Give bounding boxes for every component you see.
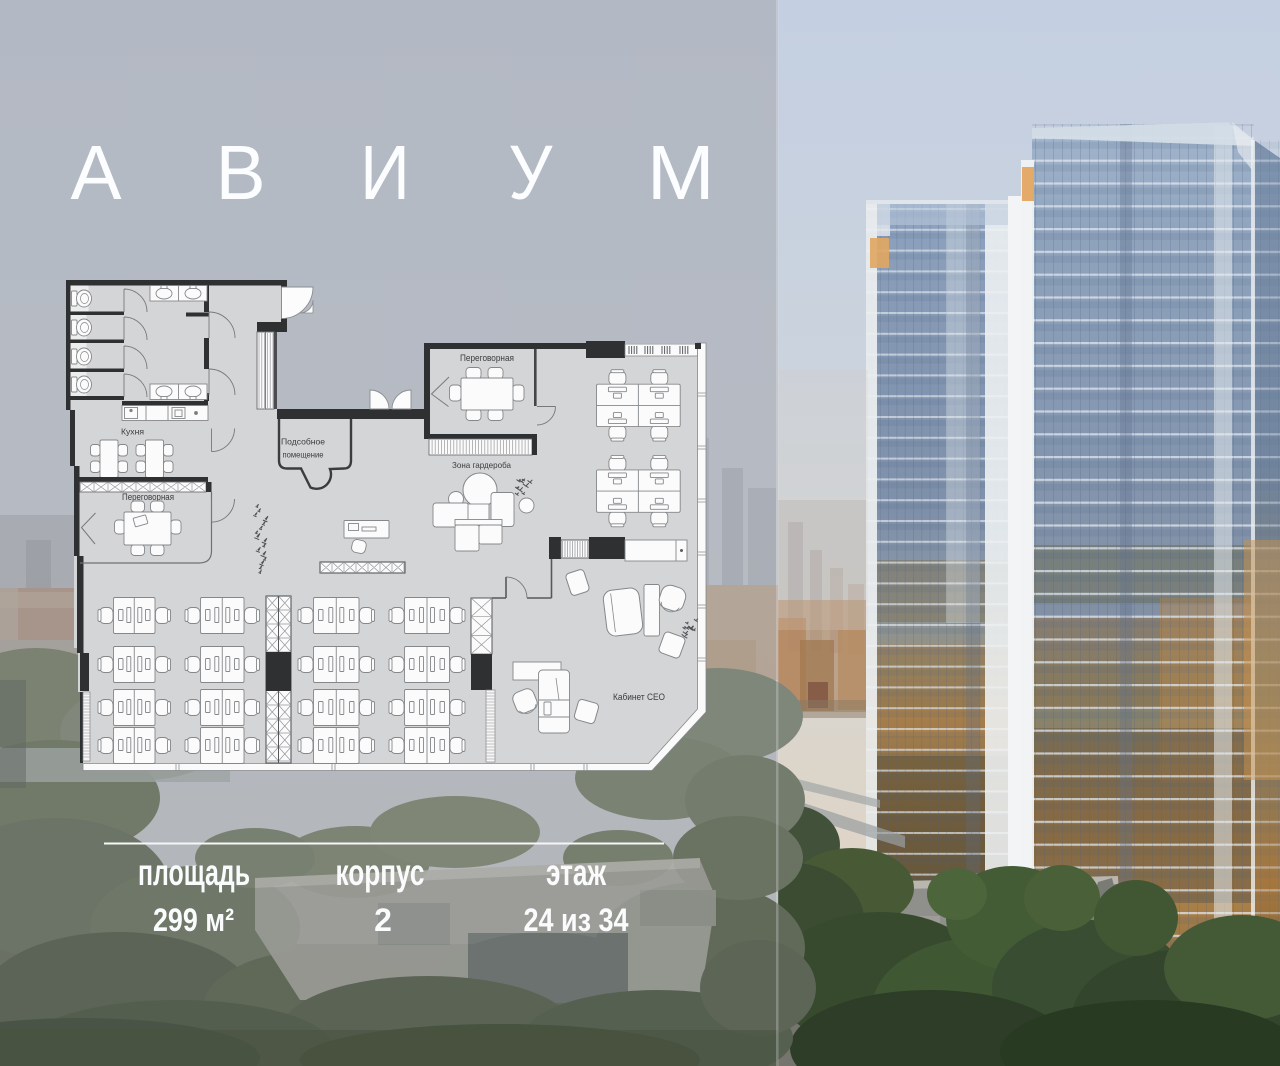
svg-text:М: М (647, 130, 715, 216)
svg-text:Переговорная: Переговорная (460, 353, 514, 363)
svg-text:Переговорная: Переговорная (122, 492, 174, 502)
svg-text:корпус: корпус (336, 852, 425, 893)
svg-text:А: А (71, 130, 123, 216)
svg-text:этаж: этаж (546, 852, 607, 893)
svg-text:В: В (216, 130, 266, 216)
svg-text:Кухня: Кухня (121, 428, 144, 437)
svg-text:помещение: помещение (283, 450, 324, 460)
svg-text:24 из 34: 24 из 34 (524, 902, 629, 938)
svg-text:У: У (508, 130, 553, 216)
svg-text:299 м²: 299 м² (153, 902, 234, 938)
svg-text:И: И (360, 130, 410, 216)
svg-text:Зона гардероба: Зона гардероба (452, 460, 511, 470)
svg-text:площадь: площадь (138, 852, 250, 893)
svg-text:Подсобное: Подсобное (281, 437, 325, 447)
svg-text:2: 2 (374, 902, 392, 938)
svg-text:Кабинет СЕО: Кабинет СЕО (613, 692, 665, 702)
